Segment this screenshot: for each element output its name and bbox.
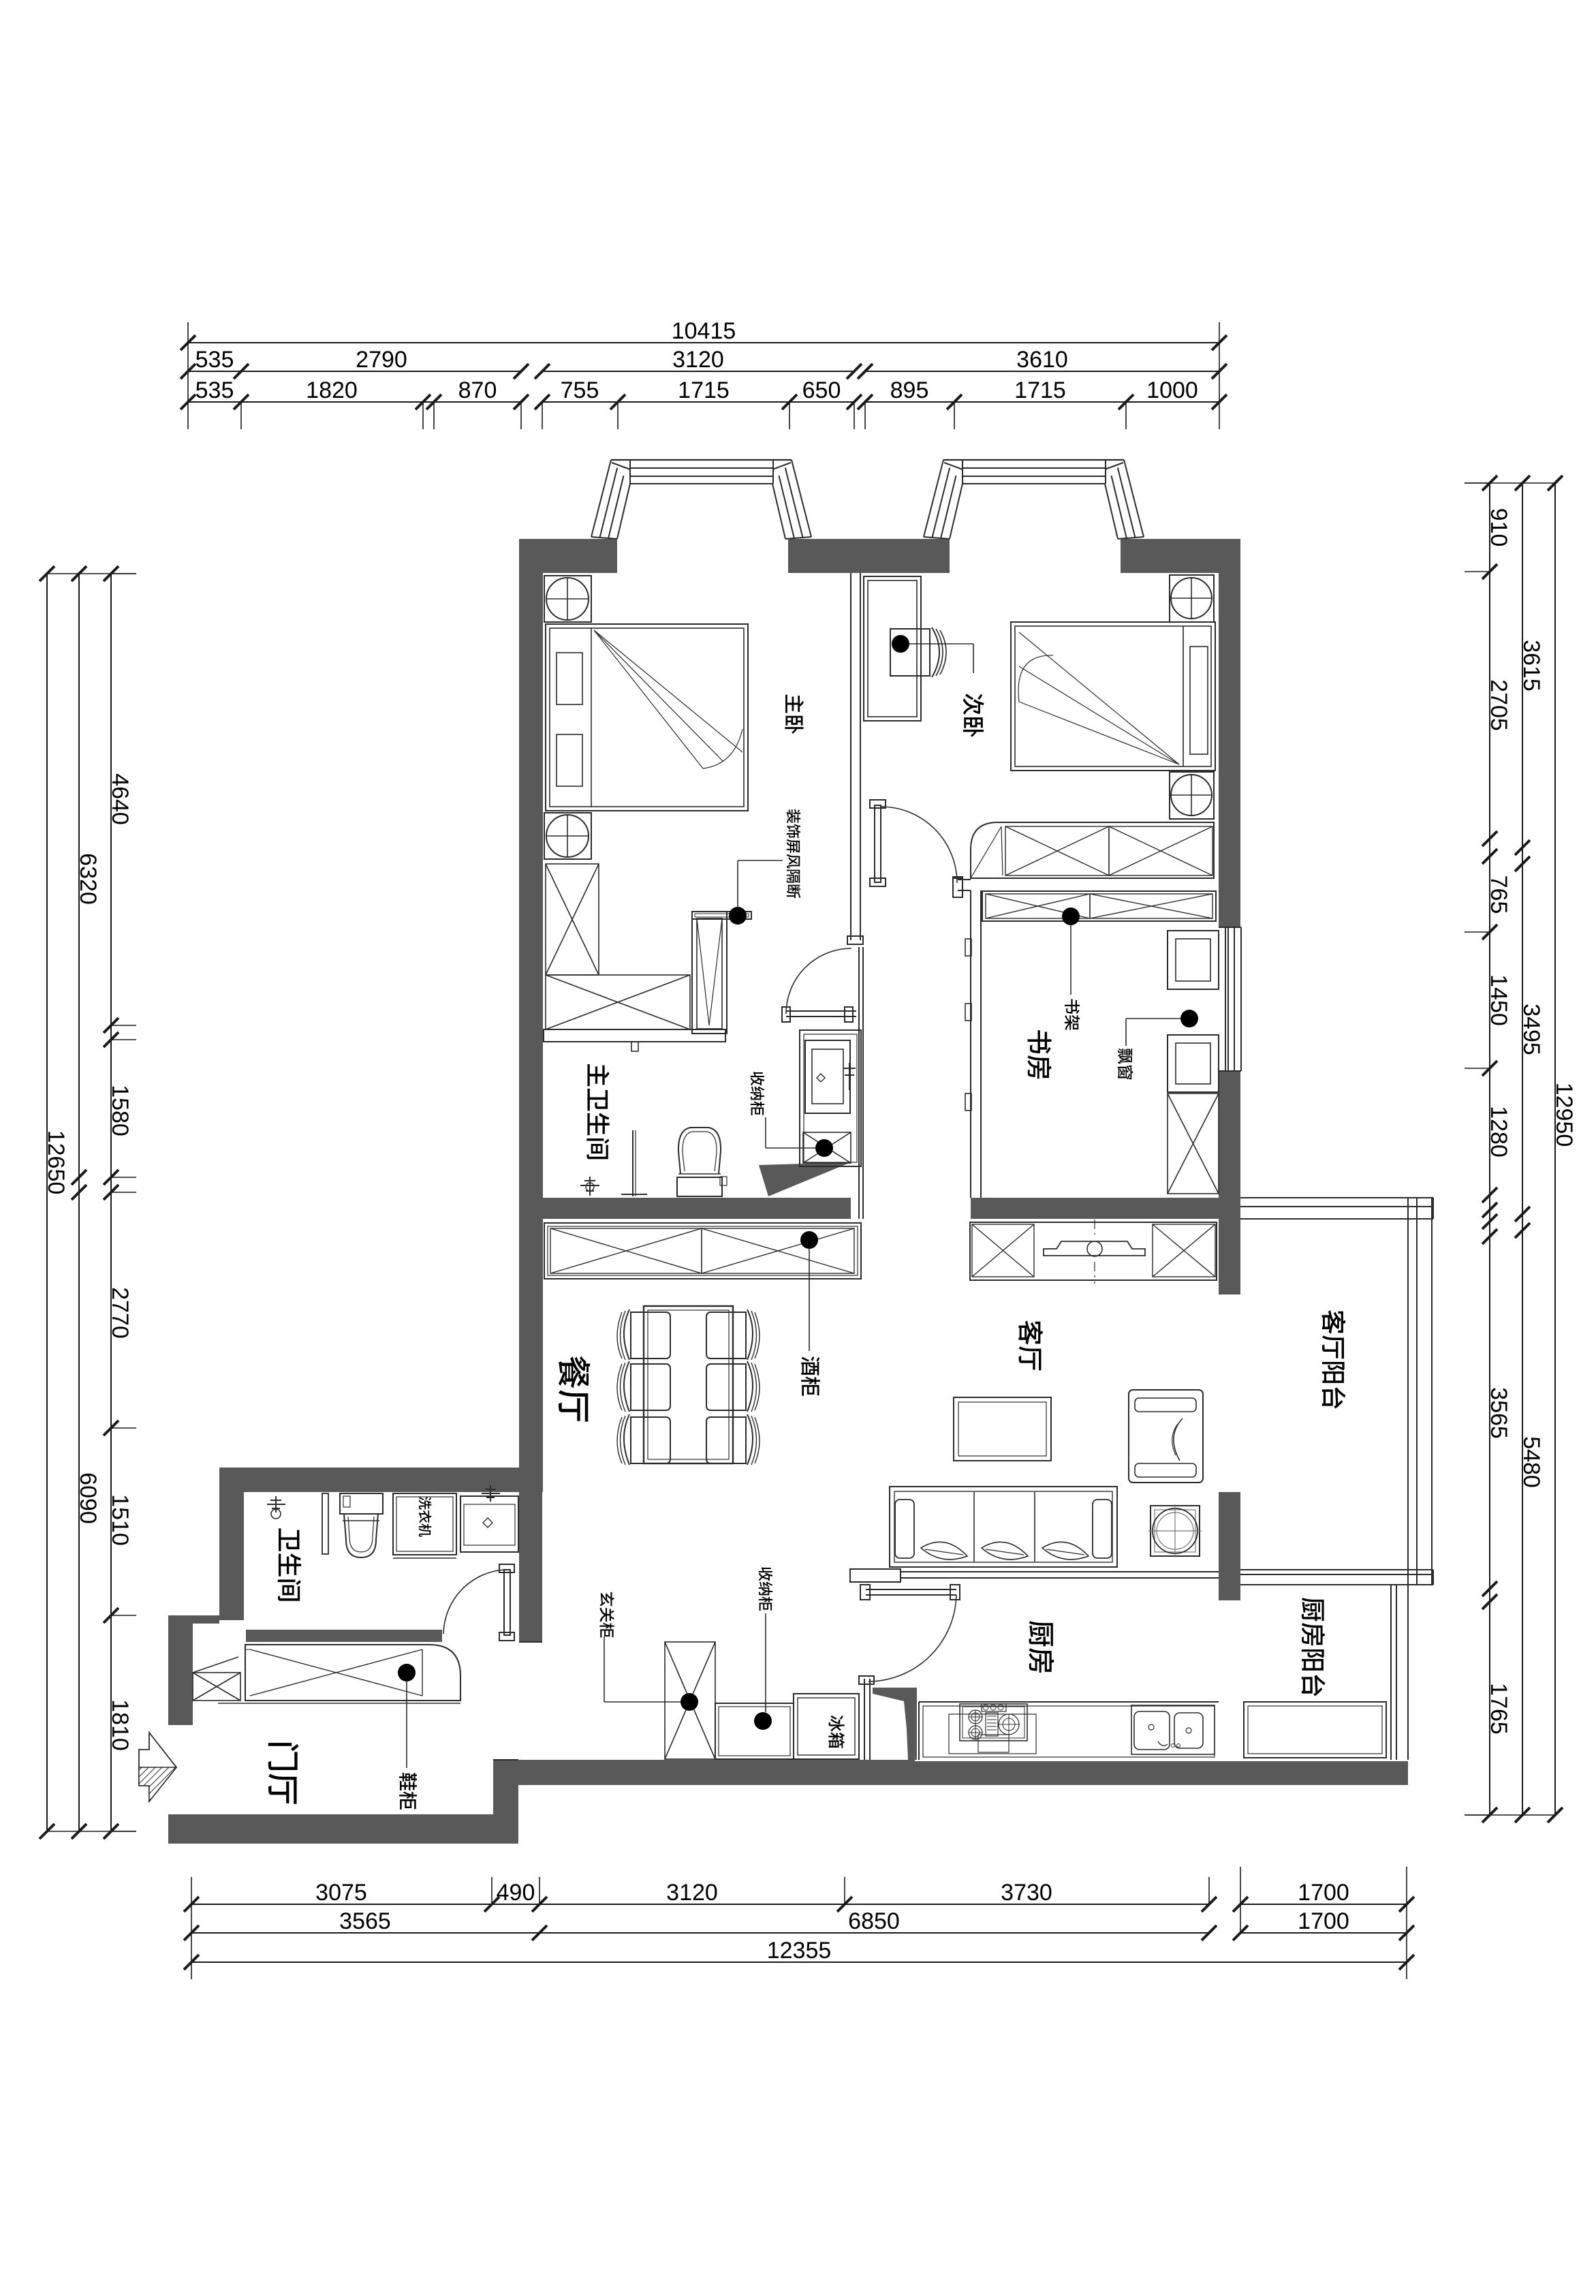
svg-text:895: 895	[890, 377, 929, 403]
svg-text:6090: 6090	[75, 1472, 101, 1524]
svg-text:535: 535	[195, 347, 234, 373]
svg-text:1450: 1450	[1486, 974, 1512, 1026]
svg-text:3565: 3565	[339, 1908, 391, 1934]
svg-text:490: 490	[497, 1880, 535, 1906]
svg-text:910: 910	[1486, 508, 1512, 547]
svg-text:12650: 12650	[43, 1130, 69, 1195]
svg-text:3610: 3610	[1016, 347, 1068, 373]
svg-text:3075: 3075	[315, 1880, 367, 1906]
svg-text:1280: 1280	[1486, 1106, 1512, 1158]
svg-text:3730: 3730	[1001, 1880, 1052, 1906]
svg-text:2770: 2770	[107, 1287, 133, 1339]
svg-text:3120: 3120	[672, 347, 724, 373]
svg-text:3565: 3565	[1486, 1387, 1512, 1439]
svg-text:755: 755	[561, 377, 599, 403]
svg-text:1820: 1820	[306, 377, 358, 403]
svg-text:1810: 1810	[107, 1699, 133, 1751]
svg-text:1700: 1700	[1298, 1880, 1349, 1906]
svg-text:12950: 12950	[1551, 1083, 1577, 1147]
svg-text:3495: 3495	[1518, 1004, 1544, 1055]
svg-text:1715: 1715	[1014, 377, 1066, 403]
svg-text:10415: 10415	[672, 318, 736, 344]
svg-text:3120: 3120	[666, 1880, 718, 1906]
svg-text:2705: 2705	[1486, 679, 1512, 731]
svg-text:650: 650	[802, 377, 841, 403]
svg-text:870: 870	[458, 377, 497, 403]
svg-text:4640: 4640	[107, 773, 133, 825]
svg-text:1700: 1700	[1298, 1908, 1349, 1934]
svg-text:1580: 1580	[107, 1085, 133, 1136]
svg-text:5480: 5480	[1518, 1436, 1544, 1488]
svg-text:1510: 1510	[107, 1494, 133, 1546]
svg-text:6320: 6320	[75, 853, 101, 905]
svg-text:1000: 1000	[1146, 377, 1198, 403]
svg-text:765: 765	[1486, 875, 1512, 914]
svg-text:2790: 2790	[356, 347, 407, 373]
svg-text:6850: 6850	[848, 1908, 900, 1934]
svg-text:1715: 1715	[678, 377, 730, 403]
svg-text:3615: 3615	[1518, 640, 1544, 692]
svg-text:1765: 1765	[1486, 1683, 1512, 1735]
svg-text:535: 535	[195, 377, 234, 403]
svg-text:12355: 12355	[767, 1938, 832, 1964]
